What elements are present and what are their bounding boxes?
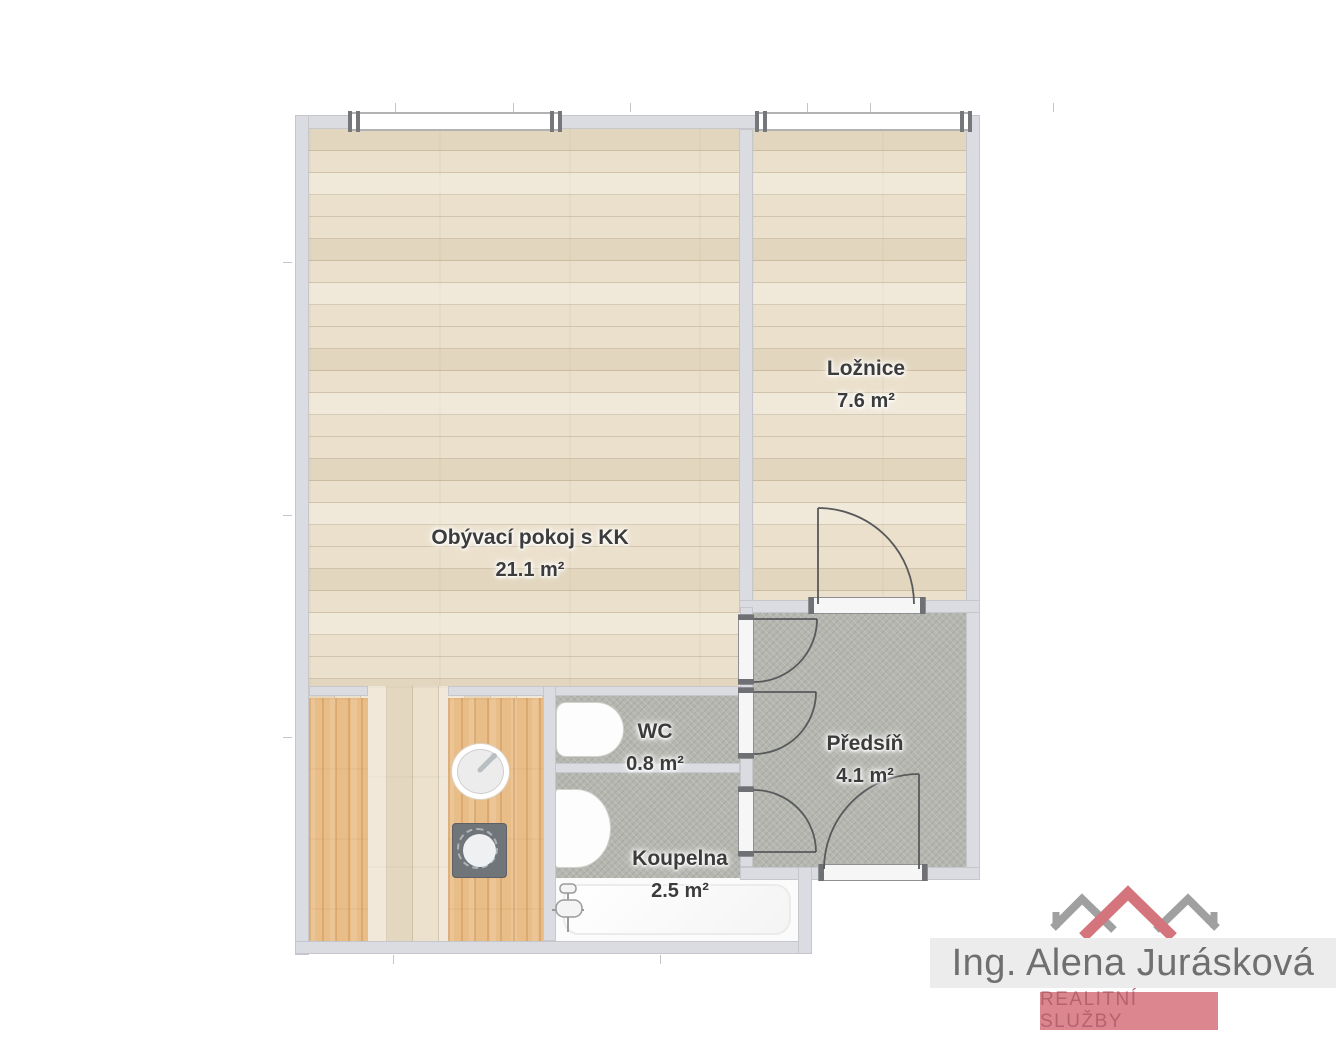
window-cap: [348, 111, 352, 132]
room-area: 2.5 m²: [632, 875, 728, 908]
kitchen-sink: [452, 744, 509, 799]
living-room-floor: [309, 129, 739, 686]
room-name: Koupelna: [632, 842, 728, 875]
window-cap: [968, 111, 972, 132]
door-frame-cap: [738, 688, 754, 693]
door-frame-cap: [920, 597, 925, 614]
door-frame-cap: [738, 787, 754, 792]
room-label-hall: Předsíň 4.1 m²: [826, 727, 903, 793]
wall-outer-bottom: [295, 941, 812, 954]
tick-mark: [283, 515, 292, 516]
tick-mark: [393, 955, 394, 964]
window-cap: [755, 111, 759, 132]
living-room-window: [348, 112, 562, 131]
window-cap: [356, 111, 360, 132]
room-label-bedroom: Ložnice 7.6 m²: [827, 352, 905, 418]
agency-name: Ing. Alena Jurásková: [952, 942, 1315, 985]
room-label-living: Obývací pokoj s KK 21.1 m²: [431, 521, 628, 587]
door-frame-bathroom: [738, 786, 754, 857]
door-frame-cap: [738, 851, 754, 856]
wall-outer-right: [966, 115, 980, 880]
door-frame-cap: [738, 753, 754, 758]
tick-mark: [807, 103, 808, 112]
cooktop-burner: [463, 834, 496, 867]
door-frame-cap: [922, 864, 927, 881]
wall-living-bottom-left: [309, 686, 368, 696]
room-label-bathroom: Koupelna 2.5 m²: [632, 842, 728, 908]
toilet: [557, 703, 623, 756]
wall-kitchen-right: [543, 686, 556, 941]
window-cap: [558, 111, 562, 132]
agency-tagline-badge: REALITNÍ SLUŽBY: [1040, 992, 1218, 1030]
tick-mark: [395, 103, 396, 112]
window-cap: [960, 111, 964, 132]
cooktop: [452, 823, 507, 878]
window-cap: [763, 111, 767, 132]
door-frame-living-hall: [738, 614, 754, 685]
room-area: 4.1 m²: [826, 760, 903, 793]
bedroom-window: [755, 112, 972, 131]
tick-mark: [513, 103, 514, 112]
door-frame-cap: [809, 597, 814, 614]
room-name: Předsíň: [826, 727, 903, 760]
room-area: 0.8 m²: [626, 748, 684, 781]
door-frame-bedroom: [808, 597, 926, 614]
agency-name-band: Ing. Alena Jurásková: [930, 938, 1336, 988]
door-frame-cap: [819, 864, 824, 881]
tick-mark: [283, 737, 292, 738]
room-name: WC: [626, 715, 684, 748]
wall-outer-left: [295, 115, 309, 955]
tick-mark: [630, 103, 631, 112]
room-area: 21.1 m²: [431, 554, 628, 587]
tick-mark: [660, 955, 661, 964]
wall-living-bedroom: [739, 129, 753, 607]
room-name: Obývací pokoj s KK: [431, 521, 628, 554]
room-area: 7.6 m²: [827, 385, 905, 418]
wall-bath-right: [798, 867, 812, 954]
door-frame-wc: [738, 687, 754, 759]
tick-mark: [1053, 103, 1054, 112]
agency-tagline: REALITNÍ SLUŽBY: [1040, 989, 1218, 1033]
wall-living-bottom-right: [448, 686, 740, 696]
kitchen-sink-basin: [457, 749, 504, 794]
agency-house-logo-icon: [1020, 885, 1250, 945]
room-label-wc: WC 0.8 m²: [626, 715, 684, 781]
kitchen-counter-left: [309, 698, 368, 941]
room-name: Ložnice: [827, 352, 905, 385]
door-frame-entrance: [818, 864, 928, 881]
door-frame-cap: [738, 615, 754, 620]
floorplan-canvas: Obývací pokoj s KK 21.1 m² Ložnice 7.6 m…: [0, 0, 1336, 1040]
roof-window-squares: [1121, 912, 1134, 925]
door-frame-cap: [738, 679, 754, 684]
tick-mark: [283, 262, 292, 263]
kitchen-counter-right: [448, 698, 545, 941]
window-cap: [550, 111, 554, 132]
tick-mark: [870, 103, 871, 112]
